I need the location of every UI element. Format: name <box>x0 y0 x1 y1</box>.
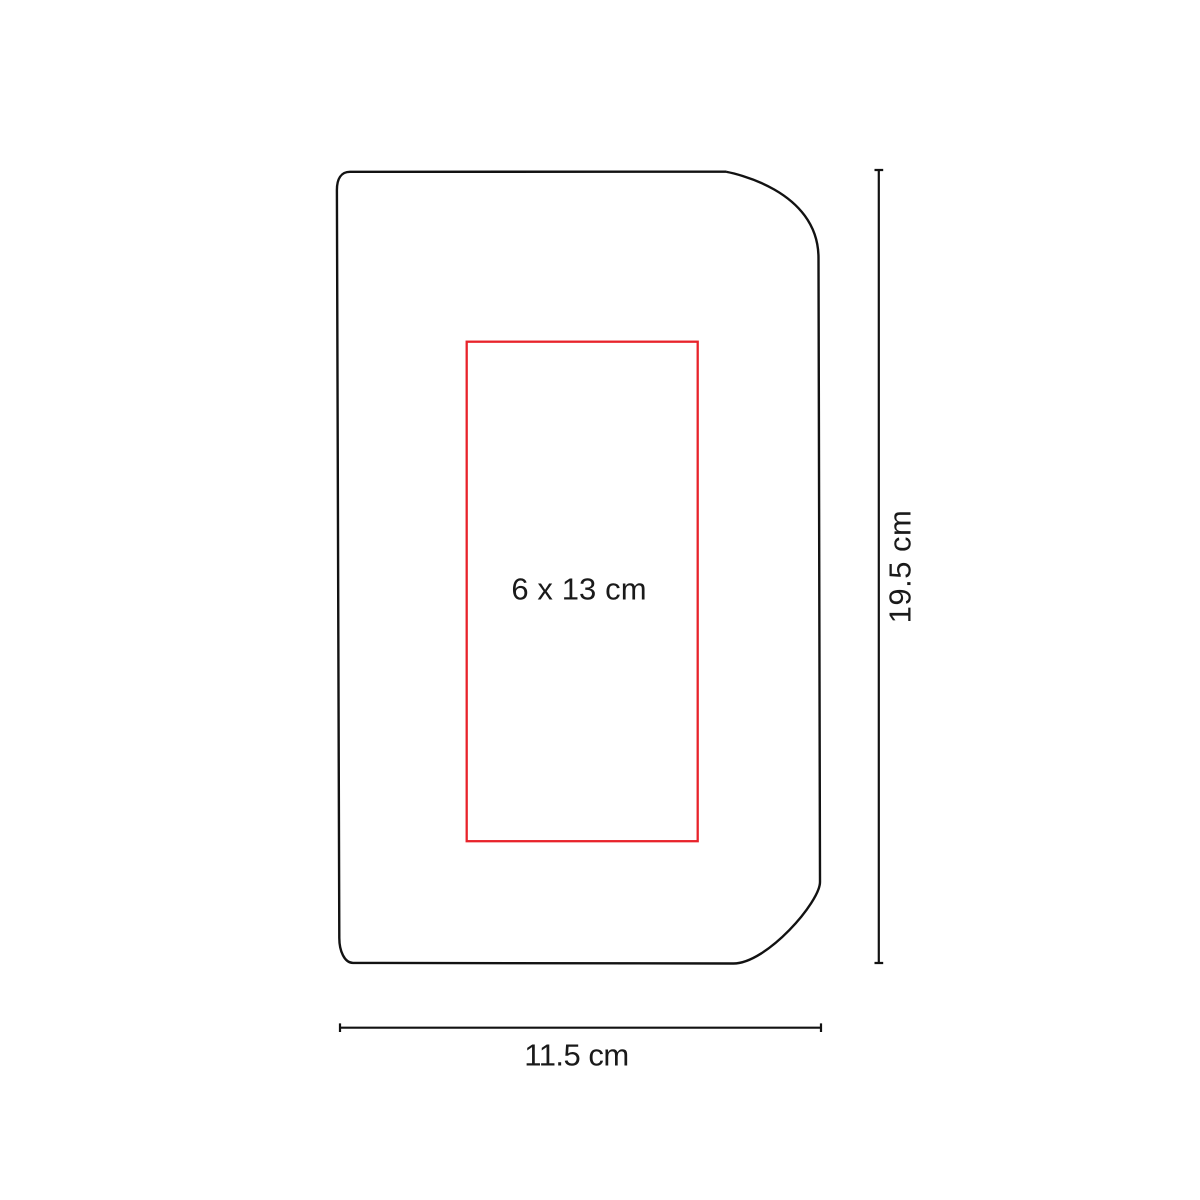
svg-text:6 x 13 cm: 6 x 13 cm <box>511 572 646 607</box>
svg-text:19.5 cm: 19.5 cm <box>883 510 918 624</box>
svg-text:11.5 cm: 11.5 cm <box>524 1038 628 1073</box>
